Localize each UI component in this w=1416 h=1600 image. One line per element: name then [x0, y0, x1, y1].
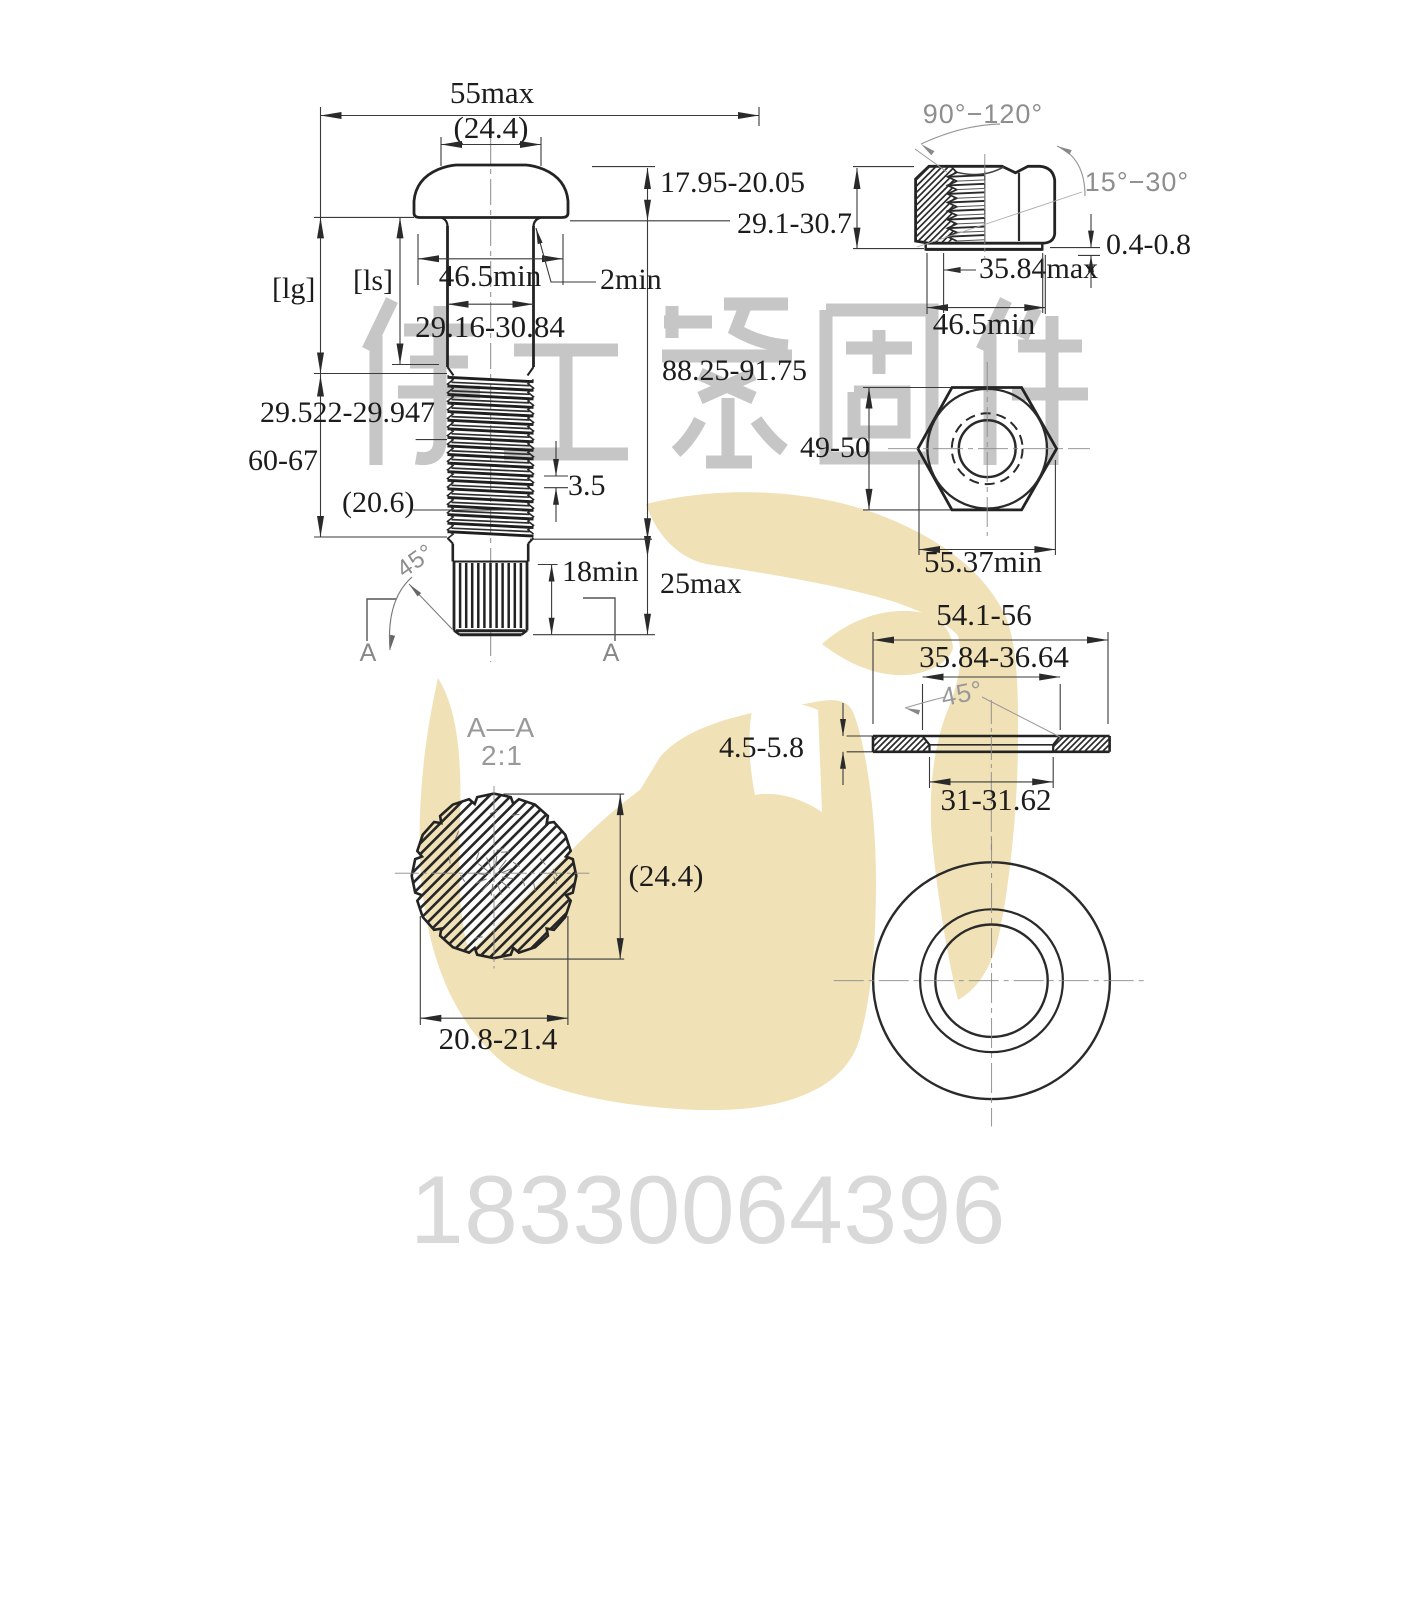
svg-text:A—A: A—A: [467, 712, 535, 743]
svg-text:88.25-91.75: 88.25-91.75: [662, 354, 807, 387]
svg-text:29.522-29.947: 29.522-29.947: [260, 396, 435, 429]
svg-text:3.5: 3.5: [568, 469, 606, 502]
svg-text:49-50: 49-50: [800, 431, 870, 464]
svg-text:4.5-5.8: 4.5-5.8: [719, 731, 804, 764]
svg-text:(20.6): (20.6): [342, 486, 414, 519]
svg-text:18min: 18min: [562, 555, 639, 588]
svg-text:A: A: [360, 639, 377, 667]
svg-text:(24.4): (24.4): [454, 110, 529, 145]
svg-text:25max: 25max: [660, 567, 742, 600]
svg-text:[ls]: [ls]: [353, 264, 393, 297]
svg-text:2min: 2min: [600, 263, 662, 296]
svg-text:35.84max: 35.84max: [979, 252, 1098, 285]
svg-text:2:1: 2:1: [481, 740, 523, 771]
svg-text:46.5min: 46.5min: [439, 258, 542, 293]
svg-text:35.84-36.64: 35.84-36.64: [919, 639, 1069, 674]
svg-text:90°−120°: 90°−120°: [923, 99, 1043, 129]
svg-text:0.4-0.8: 0.4-0.8: [1106, 228, 1191, 261]
svg-text:29.16-30.84: 29.16-30.84: [415, 309, 565, 344]
svg-text:17.95-20.05: 17.95-20.05: [660, 166, 805, 199]
svg-text:54.1-56: 54.1-56: [936, 597, 1032, 632]
svg-text:18330064396: 18330064396: [410, 1157, 1006, 1264]
svg-text:60-67: 60-67: [248, 444, 318, 477]
svg-text:15°−30°: 15°−30°: [1085, 167, 1189, 197]
svg-text:55max: 55max: [450, 75, 535, 110]
svg-text:29.1-30.7: 29.1-30.7: [737, 207, 852, 240]
svg-text:46.5min: 46.5min: [933, 306, 1036, 341]
svg-text:A: A: [603, 639, 620, 667]
svg-text:20.8-21.4: 20.8-21.4: [439, 1021, 558, 1056]
svg-text:[lg]: [lg]: [272, 272, 315, 305]
svg-text:31-31.62: 31-31.62: [940, 782, 1051, 817]
svg-text:(24.4): (24.4): [629, 858, 704, 893]
